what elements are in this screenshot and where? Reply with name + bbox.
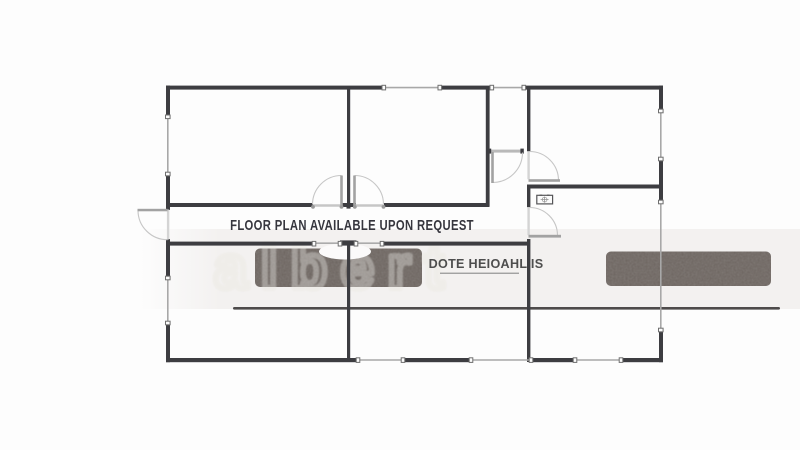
svg-text:DOTE HEIOAHL IS: DOTE HEIOAHL IS bbox=[429, 257, 544, 271]
svg-text:FLOOR PLAN AVAILABLE UPON REQU: FLOOR PLAN AVAILABLE UPON REQUEST bbox=[230, 216, 474, 233]
